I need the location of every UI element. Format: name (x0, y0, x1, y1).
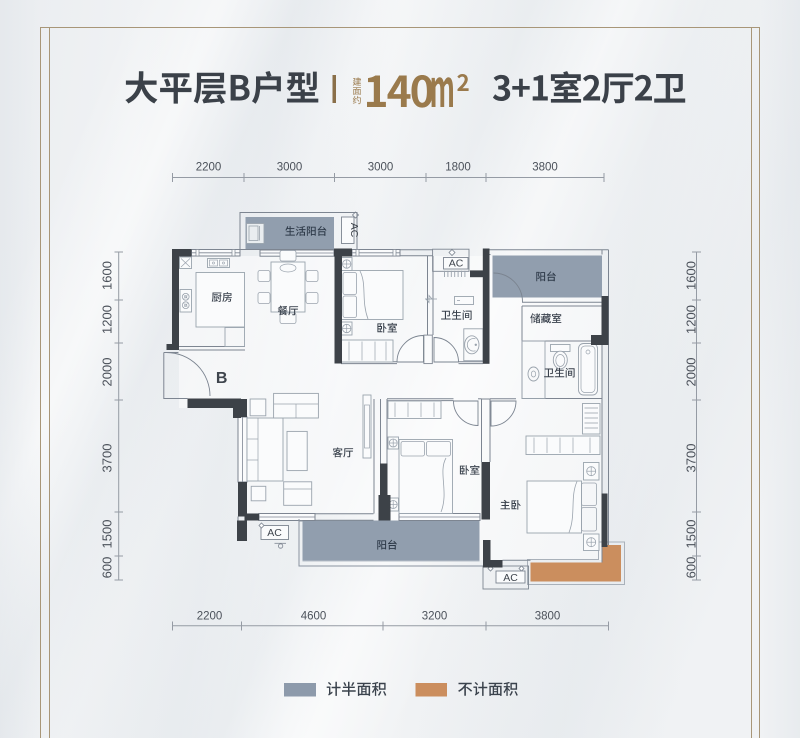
svg-text:4600: 4600 (301, 611, 327, 623)
svg-text:1600: 1600 (100, 261, 115, 290)
svg-text:3200: 3200 (422, 611, 448, 623)
svg-text:3800: 3800 (532, 162, 558, 174)
svg-text:3000: 3000 (277, 162, 303, 174)
svg-text:AC: AC (348, 223, 360, 238)
svg-text:AC: AC (503, 572, 518, 584)
svg-text:1500: 1500 (100, 520, 115, 549)
svg-text:3800: 3800 (535, 611, 561, 623)
svg-text:AC: AC (267, 527, 282, 539)
svg-text:1500: 1500 (684, 520, 699, 549)
svg-text:3700: 3700 (684, 444, 699, 473)
svg-text:AC: AC (449, 258, 464, 270)
svg-text:2000: 2000 (684, 358, 699, 387)
svg-text:1200: 1200 (684, 305, 699, 334)
svg-text:600: 600 (100, 557, 115, 579)
svg-text:B: B (216, 370, 228, 387)
svg-text:600: 600 (684, 557, 699, 579)
svg-text:2200: 2200 (196, 162, 222, 174)
svg-text:1200: 1200 (100, 305, 115, 334)
svg-text:2200: 2200 (197, 611, 223, 623)
svg-text:1600: 1600 (684, 261, 699, 290)
svg-text:3000: 3000 (368, 162, 394, 174)
svg-text:1800: 1800 (445, 162, 471, 174)
svg-text:3700: 3700 (100, 444, 115, 473)
svg-text:2000: 2000 (100, 358, 115, 387)
